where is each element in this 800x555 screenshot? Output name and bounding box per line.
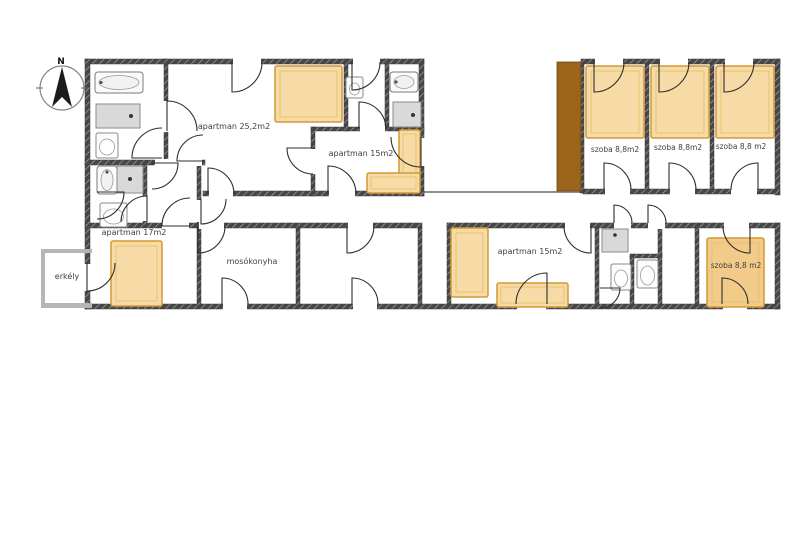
door-arc — [352, 278, 378, 304]
door-opening — [233, 58, 261, 65]
wall — [658, 223, 662, 306]
door-opening — [310, 149, 316, 174]
bathtub-faucet — [105, 170, 108, 173]
room-label-szoba-2: szoba 8,8m2 — [654, 143, 702, 152]
bed — [586, 66, 644, 138]
door-arc — [222, 278, 248, 304]
room-label-apartman-25-2: apartman 25,2m2 — [198, 122, 270, 131]
wall — [695, 223, 699, 306]
door-opening — [360, 126, 385, 132]
floor-plan-canvas: N apartman 25,2m2apartman 15m2szoba 8,8m… — [0, 0, 800, 555]
balcony-wall — [41, 249, 92, 253]
door-opening — [605, 188, 630, 195]
sink-drain — [613, 233, 617, 237]
door-arc — [731, 163, 758, 190]
door-opening — [648, 222, 665, 229]
bed — [275, 66, 342, 122]
compass-rose: N — [36, 57, 88, 110]
door-opening — [348, 222, 373, 229]
door-arc — [347, 226, 374, 253]
bathtub-faucet — [99, 81, 102, 84]
door-arc — [132, 128, 162, 158]
room-label-apartman-17: apartman 17m2 — [102, 228, 167, 237]
wall — [775, 223, 780, 309]
floor-plan-svg: N apartman 25,2m2apartman 15m2szoba 8,8m… — [0, 0, 800, 555]
wall — [645, 63, 649, 191]
room-label-apartman-15-bottom: apartman 15m2 — [498, 247, 563, 256]
door-opening — [329, 190, 355, 197]
door-arc — [177, 135, 203, 161]
room-label-mosokonyha: mosókonyha — [227, 256, 278, 266]
door-opening — [209, 190, 233, 197]
room-label-szoba-1: szoba 8,8m2 — [591, 145, 639, 154]
furniture-layer — [111, 66, 774, 307]
room-label-szoba-4: szoba 8,8 m2 — [711, 261, 762, 270]
shower — [96, 104, 140, 128]
shower-drain — [128, 177, 132, 181]
wall — [296, 227, 300, 306]
balcony-wall — [41, 303, 92, 308]
door-opening — [670, 188, 695, 195]
door-opening — [660, 58, 688, 65]
door-arc — [162, 198, 190, 226]
door-arc — [198, 226, 225, 253]
door-opening — [353, 303, 377, 310]
door-arc — [152, 163, 178, 189]
door-arc — [201, 199, 226, 224]
wardrobe — [557, 62, 581, 191]
bed — [716, 66, 774, 138]
room-label-apartman-15-top: apartman 15m2 — [329, 149, 394, 158]
door-arc — [232, 62, 262, 92]
bathtub-basin — [99, 76, 139, 90]
wall — [630, 254, 662, 258]
toilet-bowl — [100, 139, 115, 155]
toilet-bowl — [641, 266, 655, 285]
wall — [385, 59, 389, 129]
shower-drain — [411, 113, 415, 117]
door-opening — [199, 222, 224, 229]
door-opening — [731, 188, 757, 195]
bed — [651, 66, 709, 138]
bed — [111, 241, 162, 306]
door-opening — [353, 58, 380, 65]
door-arc — [287, 148, 313, 174]
door-arc — [614, 205, 632, 223]
north-arrow-icon — [52, 67, 72, 107]
wall — [85, 304, 780, 309]
door-opening — [724, 222, 749, 229]
door-opening — [565, 222, 590, 229]
door-opening — [725, 58, 753, 65]
door-arc — [167, 101, 197, 131]
shower-drain — [129, 114, 133, 118]
door-arc — [648, 205, 666, 223]
bathtub-faucet — [394, 80, 397, 83]
wall — [418, 227, 422, 306]
room-label-erkely: erkély — [55, 271, 80, 281]
door-arc — [359, 102, 386, 129]
door-opening — [595, 58, 623, 65]
door-opening — [196, 200, 203, 222]
sink — [602, 229, 628, 252]
door-arc — [564, 226, 591, 253]
sofa — [399, 130, 420, 177]
door-opening — [223, 303, 247, 310]
wall — [775, 59, 780, 195]
door-arc — [328, 166, 356, 194]
shower — [393, 102, 421, 127]
door-arc — [669, 163, 696, 190]
bed — [451, 228, 488, 297]
toilet-bowl — [615, 270, 628, 287]
door-opening — [614, 222, 631, 229]
door-arc — [604, 163, 631, 190]
room-label-szoba-3: szoba 8,8 m2 — [716, 142, 767, 151]
compass-north-label: N — [57, 57, 65, 67]
wall — [595, 227, 599, 306]
balcony-wall — [41, 249, 45, 308]
wall — [710, 63, 714, 191]
sofa — [367, 173, 420, 193]
